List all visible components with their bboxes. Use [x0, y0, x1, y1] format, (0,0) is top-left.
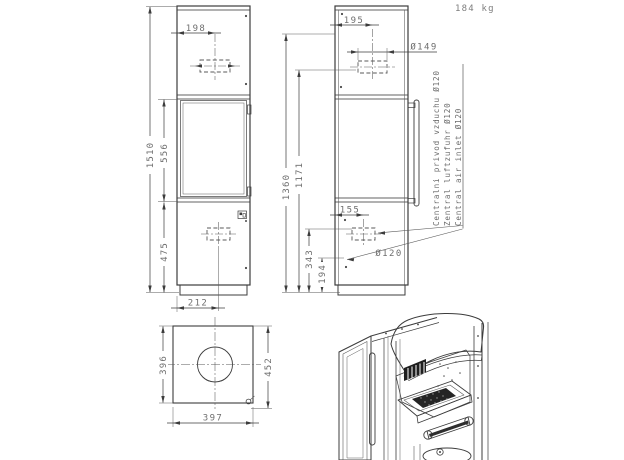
- dim-label-inlet-height-b: 194: [318, 264, 328, 284]
- front-view-dimensions: 198 1510 556 475: [144, 7, 225, 313]
- dim-label-inlet-offset: 155: [340, 206, 360, 216]
- dim-label-depth: 396: [159, 355, 169, 375]
- dim-label-flue-height: 1360: [282, 174, 292, 200]
- front-elevation-view: 198 1510 556 475: [144, 6, 251, 312]
- dim-label-flue-center-offset: 195: [344, 16, 364, 26]
- air-inlet-note-en: Central air inlet Ø120: [454, 108, 463, 226]
- door-handle: [408, 100, 419, 206]
- grate-platform: [398, 381, 472, 423]
- air-inlet-note-cz: Centralni privod vzduchu Ø120: [432, 70, 441, 226]
- ash-lip-bar: [424, 417, 473, 439]
- dim-label-door-height: 556: [160, 143, 170, 163]
- side-elevation-view: 195 Ø149 1360 1171: [280, 6, 463, 295]
- grate-perforated-plate: [412, 388, 456, 408]
- dim-label-flue-diameter: Ø149: [410, 42, 437, 53]
- dim-label-inlet-diameter: Ø120: [375, 248, 402, 259]
- brand-mark: [238, 211, 247, 219]
- dim-label-overall-depth: 452: [264, 357, 274, 377]
- dim-label-width: 397: [203, 414, 223, 424]
- top-view-linework: [166, 317, 261, 409]
- dim-label-base-height: 475: [160, 242, 170, 262]
- open-door: [339, 336, 375, 460]
- top-view-dimensions: 396 452 397: [157, 326, 274, 427]
- technical-drawing-sheet: 198 1510 556 475: [0, 0, 624, 460]
- dim-label-total-height: 1510: [146, 142, 156, 168]
- air-inlet-note-de: Zentral luftzufuhr Ø120: [443, 102, 452, 226]
- dim-label-front-inlet-offset: 212: [188, 299, 208, 309]
- front-view-linework: [177, 6, 251, 311]
- dim-label-front-flue-offset: 198: [186, 24, 206, 34]
- weight-label: 184 kg: [455, 4, 495, 14]
- top-plan-view: 396 452 397: [157, 317, 274, 427]
- dim-label-upper-height: 1171: [295, 162, 305, 188]
- isometric-cutaway-view: [339, 313, 488, 460]
- stove-dimension-drawing: 198 1510 556 475: [0, 0, 624, 460]
- dim-label-inlet-height-a: 343: [305, 249, 315, 269]
- round-base-plate: [423, 448, 471, 460]
- air-inlet-notes: Centralni privod vzduchu Ø120 Zentral lu…: [432, 64, 463, 229]
- door-handle-bar: [370, 353, 376, 445]
